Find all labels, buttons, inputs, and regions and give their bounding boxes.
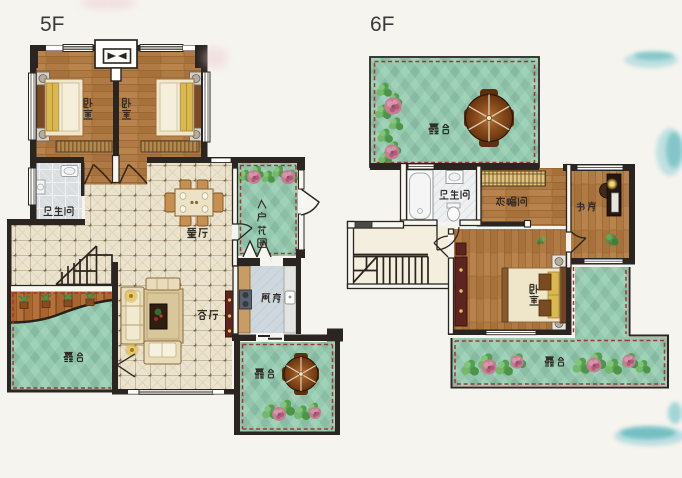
svg-text:5F: 5F <box>40 13 65 36</box>
svg-text:6F: 6F <box>370 13 395 36</box>
